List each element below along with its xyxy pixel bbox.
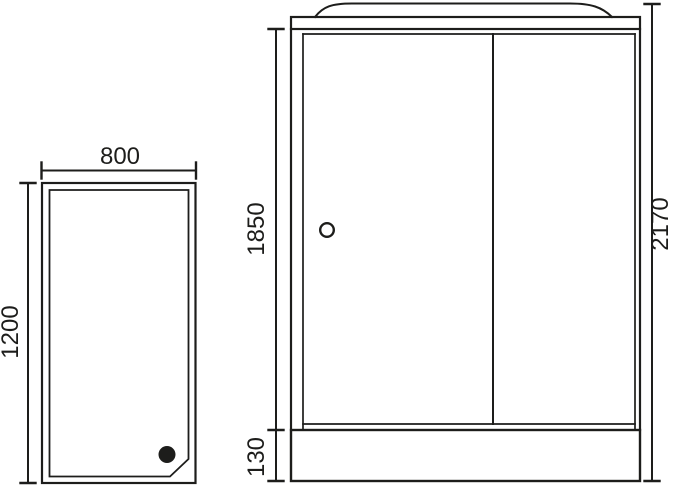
door-handle-icon: [320, 223, 334, 237]
tray-inner-outline-chamfered: [50, 190, 189, 477]
tray-top-view: [21, 163, 197, 484]
door-height-label: 1850: [243, 202, 270, 255]
shower-cabin-dimension-drawing: 800 1200 1850 130 2170: [0, 0, 682, 488]
base-height-label: 130: [243, 437, 270, 477]
base-height-dimension: [269, 430, 284, 481]
door-height-dimension: [269, 29, 284, 430]
base-tray-front: [291, 430, 640, 481]
drain-icon: [159, 446, 176, 463]
tray-depth-label: 1200: [0, 305, 24, 358]
total-height-label: 2170: [647, 197, 674, 250]
tray-outer-outline: [42, 183, 196, 483]
drawing-linework: [21, 4, 660, 484]
dimension-labels: 800 1200 1850 130 2170: [0, 143, 674, 477]
roof-curve: [315, 4, 612, 18]
drawing-svg: 800 1200 1850 130 2170: [0, 0, 682, 488]
cabin-front-view: [269, 4, 660, 482]
tray-width-label: 800: [100, 143, 140, 170]
top-frame-bar: [291, 17, 640, 29]
